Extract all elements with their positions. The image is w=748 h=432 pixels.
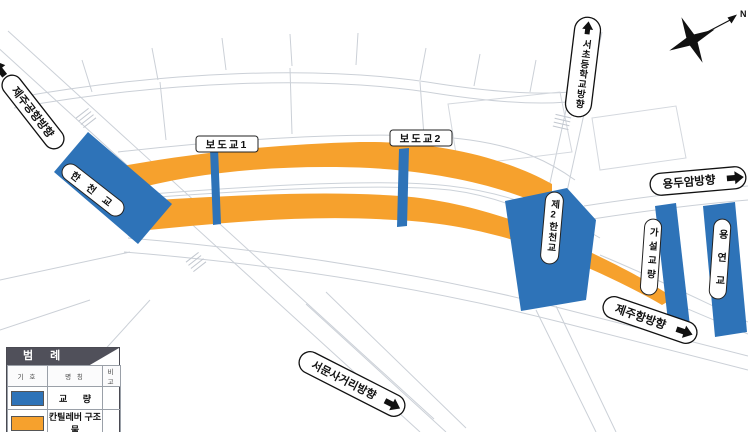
direction-pill-jeju-airport: 제주공항방향 <box>0 54 68 153</box>
block-outline <box>592 106 686 170</box>
pedestrian-bridge-1-label: 보도교1 <box>196 136 258 152</box>
south-road <box>536 306 616 432</box>
temporary-bridge <box>655 203 690 330</box>
cantilever-color-swatch <box>11 416 44 431</box>
legend-title: 범 례 <box>7 348 119 365</box>
temporary-bridge-label: 가설교량 <box>640 218 662 295</box>
pedestrian-bridge-2-label: 보도교2 <box>390 130 452 146</box>
side-street-stubs <box>160 68 424 140</box>
legend-row-bridge: 교 량 <box>8 387 121 410</box>
legend-row-cantilever: 칸틸레버 구조물 <box>8 410 121 432</box>
legend: 범 례 기 호 명 칭 비 고 교 량 칸틸레버 구조물 <box>6 347 120 432</box>
pedestrian-bridge-1-text: 보도교1 <box>206 139 249 151</box>
legend-col-symbol: 기 호 <box>8 366 48 387</box>
direction-pill-seo-elementary: 서초등학교방향 <box>564 16 602 118</box>
top-street <box>14 83 583 108</box>
compass-rose: N <box>669 9 746 63</box>
pedestrian-bridge-2-text: 보도교2 <box>400 133 443 145</box>
legend-header-row: 기 호 명 칭 비 고 <box>8 366 121 387</box>
bridge-color-swatch <box>11 391 44 406</box>
legend-note-cantilever <box>103 410 121 432</box>
compass-needle <box>692 18 734 40</box>
site-plan-map: 한 천 교 보도교1 보도교2 제2한천교 가설교량 용연교 제주공항방향 서초… <box>0 0 748 432</box>
legend-table: 기 호 명 칭 비 고 교 량 칸틸레버 구조물 <box>7 365 121 432</box>
pedestrian-bridge-2 <box>397 148 409 227</box>
compass-north-label: N <box>740 9 747 19</box>
legend-name-cantilever: 칸틸레버 구조물 <box>48 410 103 432</box>
direction-pill-seomun: 서문사거리방향 <box>295 348 408 420</box>
direction-pill-yongduam: 용두암방향 <box>649 166 747 196</box>
legend-col-name: 명 칭 <box>48 366 103 387</box>
legend-name-bridge: 교 량 <box>48 387 103 410</box>
legend-swatch-cell <box>8 410 48 432</box>
legend-col-note: 비 고 <box>103 366 121 387</box>
top-street <box>14 73 585 98</box>
legend-note-bridge <box>103 387 121 410</box>
compass-needle-tip <box>728 15 738 24</box>
legend-swatch-cell <box>8 387 48 410</box>
